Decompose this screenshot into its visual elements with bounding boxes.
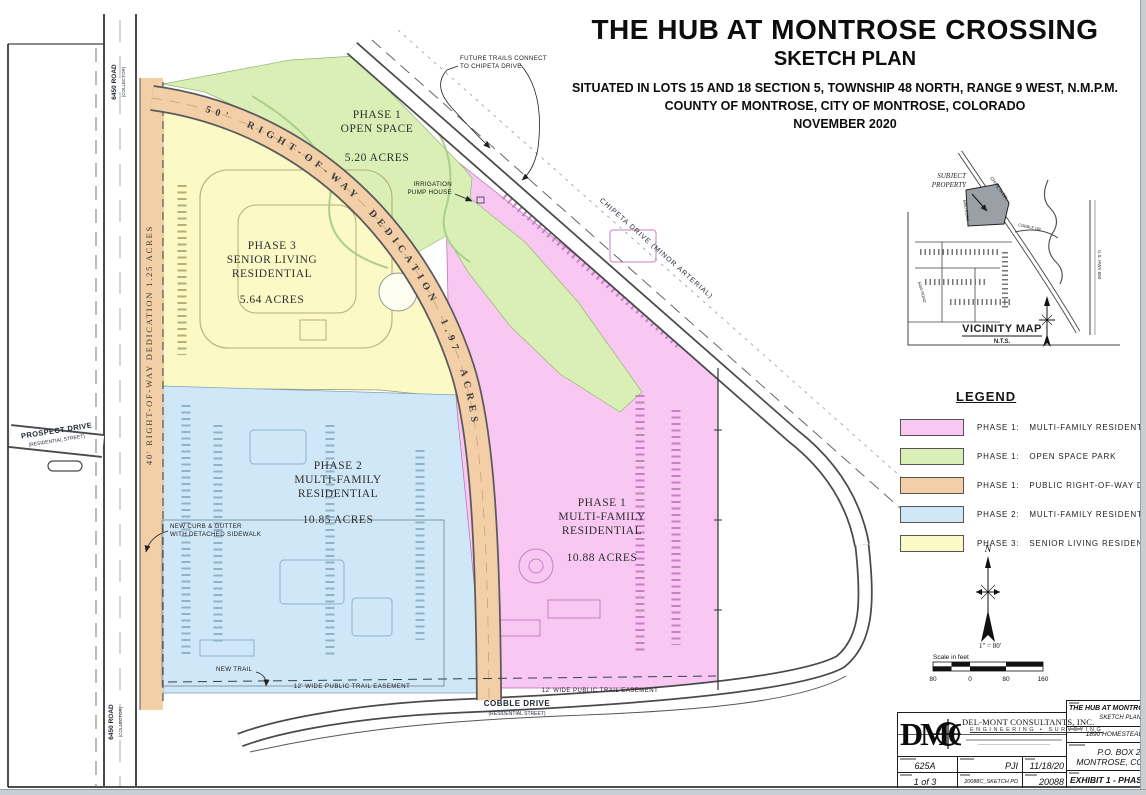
legend-phase: PHASE 1: [977,452,1019,461]
phase2-label-3: RESIDENTIAL [298,488,378,500]
project-exhibit: EXHIBIT 1 - PHASI [1070,775,1144,785]
date-line: NOVEMBER 2020 [545,115,1145,133]
company-name: DEL-MONT CONSULTANTS, INC. [962,717,1066,727]
subject-property-label-2: PROPERTY [931,181,967,189]
row40-vertical-label: 40' RIGHT-OF-WAY DEDICATION 1.25 ACRES [144,225,154,465]
scale-caption: Scale in feet [933,654,969,661]
phase2-label-2: MULTI-FAMILY [294,474,381,486]
open-space-label-1: PHASE 1 [353,109,402,121]
legend-swatch-row-dedication [900,477,964,494]
north-arrow: N [976,544,1000,642]
phase3-label-3: RESIDENTIAL [232,268,312,280]
page-subtitle: SKETCH PLAN [545,47,1145,72]
vicinity-hwy-label: U.S. HWY 550 [1097,250,1102,280]
legend-swatch-phase3-senior [900,535,964,552]
scale-bar: 1" = 80' Scale in feet 80 0 80 160 [929,642,1048,683]
scale-tick-3: 160 [1038,676,1049,683]
scale-tick-2: 80 [1002,676,1010,683]
open-space-label-2: OPEN SPACE [341,123,414,135]
phase1-acres: 10.88 ACRES [567,552,638,564]
phase2-label-1: PHASE 2 [314,460,363,472]
phase-areas [163,56,718,693]
scale-tick-0: 80 [929,676,937,683]
field-date: 11/18/20 [1022,761,1064,771]
road-6450-top-type: (COLLECTOR) [121,66,126,97]
note-pump-2: PUMP HOUSE [408,189,453,196]
subject-property-label-1: SUBJECT [937,172,967,180]
legend-item-row-dedication: PHASE 1: PUBLIC RIGHT-OF-WAY DEDICATION [900,477,1146,494]
company-fineprint2 [978,744,1050,745]
page-title: THE HUB AT MONTROSE CROSSING [545,14,1145,46]
phase1-label-1: PHASE 1 [578,497,627,509]
legend-swatch-phase2-mf [900,506,964,523]
legend-swatch-phase1-mf [900,419,964,436]
legal-description: SITUATED IN LOTS 15 AND 18 SECTION 5, TO… [545,79,1145,97]
project-client: 1890 HOMESTEAD, [1069,731,1145,738]
legend-phase: PHASE 1: [977,423,1019,432]
phase3-acres: 5.64 ACRES [240,294,304,306]
legend-item-phase1-mf: PHASE 1: MULTI-FAMILY RESIDENTIAL [900,419,1146,436]
note-curb-2: WITH DETACHED SIDEWALK [170,531,262,538]
note-easement-left: 12' WIDE PUBLIC TRAIL EASEMENT [294,684,411,690]
field-drawn-by: PJI [957,761,1018,771]
legend-phase: PHASE 1: [977,481,1019,490]
vicinity-labels: SUBJECT PROPERTY VICINITY MAP N.T.S. CHI… [917,172,1102,345]
note-pump-1: IRRIGATION [413,181,452,188]
open-space-acres: 5.20 ACRES [345,152,409,164]
scale-tick-1: 0 [968,676,972,683]
phase3-label-2: SENIOR LIVING [227,254,318,266]
vicinity-title: VICINITY MAP [962,323,1042,335]
phase1-label-2: MULTI-FAMILY [558,511,645,523]
phase2-mf-area [163,386,479,693]
phase1-label-3: RESIDENTIAL [562,525,642,537]
legend: LEGEND PHASE 1: MULTI-FAMILY RESIDENTIAL… [900,388,1146,552]
road-6450-bottom-type: (COLLECTOR) [118,706,123,737]
field-file: 20088C_SKETCH PD [957,779,1018,785]
sketch-plan-sheet: PHASE 1 OPEN SPACE 5.20 ACRES PHASE 3 SE… [0,0,1146,795]
note-future-trails-2: TO CHIPETA DRIVE [460,63,522,70]
field-sheet-code: 625A [897,761,953,771]
dmc-logo: DMC [899,714,961,754]
legend-phase: PHASE 2: [977,510,1019,519]
scale-ratio: 1" = 80' [979,642,1001,650]
legend-label: MULTI-FAMILY RESIDENTIAL [1029,423,1146,432]
road-cobble-type: (RESIDENTIAL STREET) [488,711,545,717]
legend-item-phase3-senior: PHASE 3: SENIOR LIVING RESIDENTIAL [900,535,1146,552]
road-6450-top: 6450 ROAD [111,64,118,100]
note-future-trails-1: FUTURE TRAILS CONNECT [460,55,547,62]
note-easement-right: 12' WIDE PUBLIC TRAIL EASEMENT [542,688,659,694]
project-addr2: MONTROSE, CO [1069,757,1143,767]
field-job-no: 20088 [1022,777,1064,787]
phase3-label-1: PHASE 3 [248,240,297,252]
legend-title: LEGEND [956,389,1016,404]
project-sub: SKETCH PLAN [1069,715,1141,721]
note-curb-1: NEW CURB & GUTTER [170,523,242,530]
project-addr1: P.O. BOX 2, [1069,747,1143,757]
screen-edge-right [1140,0,1146,795]
phase2-acres: 10.85 ACRES [303,514,374,526]
legend-label: OPEN SPACE PARK [1029,452,1116,461]
sheet-title: THE HUB AT MONTROSE CROSSING SKETCH PLAN… [545,14,1145,133]
vicinity-nts: N.T.S. [994,339,1011,345]
company-fineprint [966,739,1062,741]
road-6450-bottom: 6450 ROAD [108,704,115,740]
note-new-trail: NEW TRAIL [216,666,253,673]
screen-edge-bottom [0,789,1146,795]
field-sheet-no: 1 of 3 [897,777,953,787]
county-line: COUNTY OF MONTROSE, CITY OF MONTROSE, CO… [545,97,1145,115]
legend-label: MULTI-FAMILY RESIDENTIAL [1029,510,1146,519]
legend-phase: PHASE 3: [977,539,1019,548]
legend-label: SENIOR LIVING RESIDENTIAL [1029,539,1146,548]
project-name: THE HUB AT MONTROSE [1069,705,1146,712]
legend-swatch-open-space [900,448,964,465]
road-cobble: COBBLE DRIVE [484,699,551,708]
legend-item-open-space: PHASE 1: OPEN SPACE PARK [900,448,1146,465]
legend-item-phase2-mf: PHASE 2: MULTI-FAMILY RESIDENTIAL [900,506,1146,523]
legend-label: PUBLIC RIGHT-OF-WAY DEDICATION [1029,481,1146,490]
